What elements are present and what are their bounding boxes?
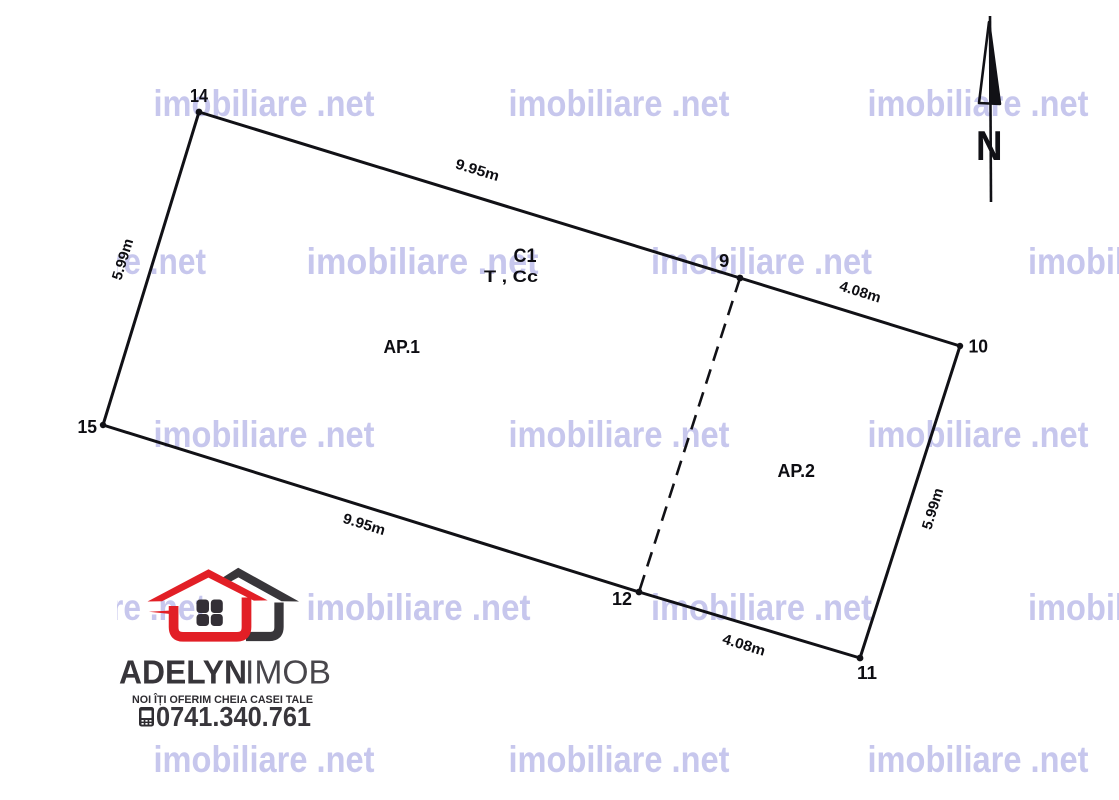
svg-text:imobiliare .net: imobiliare .net [154, 414, 375, 455]
svg-text:15: 15 [78, 416, 98, 437]
svg-text:imobiliare .net: imobiliare .net [307, 587, 531, 628]
svg-text:imobiliare .net: imobiliare .net [868, 414, 1089, 455]
svg-text:10: 10 [969, 336, 989, 357]
svg-text:9.95m: 9.95m [341, 511, 387, 539]
svg-text:9: 9 [719, 250, 729, 271]
svg-text:5.99m: 5.99m [920, 486, 948, 531]
svg-text:4.08m: 4.08m [837, 279, 882, 307]
svg-text:imobiliare .net: imobiliare .net [154, 739, 375, 780]
svg-text:0741.340.761: 0741.340.761 [156, 701, 311, 732]
svg-text:C1: C1 [514, 246, 537, 267]
svg-text:imobiliare .net: imobiliare .net [154, 83, 375, 124]
svg-text:4.08m: 4.08m [720, 632, 767, 660]
svg-text:imobiliare .net: imobiliare .net [868, 739, 1089, 780]
svg-text:imobiliare .net: imobiliare .net [509, 414, 730, 455]
svg-text:T , Cc: T , Cc [484, 267, 538, 286]
svg-text:AP.1: AP.1 [384, 336, 421, 357]
svg-text:ADELYN: ADELYN [119, 654, 247, 691]
svg-text:N: N [976, 122, 1003, 169]
svg-text:11: 11 [857, 662, 877, 683]
svg-text:IMOB: IMOB [245, 654, 331, 691]
svg-text:9.95m: 9.95m [453, 157, 501, 185]
svg-text:imobiliare .net: imobiliare .net [1028, 587, 1119, 628]
svg-text:imobiliare .net: imobiliare .net [509, 739, 730, 780]
svg-text:re .net: re .net [111, 587, 206, 628]
svg-text:AP.2: AP.2 [778, 460, 816, 481]
svg-text:imobiliare .net: imobiliare .net [651, 587, 872, 628]
svg-text:14: 14 [190, 85, 209, 106]
svg-text:imobiliare .net: imobiliare .net [1028, 241, 1119, 282]
svg-text:12: 12 [612, 588, 632, 609]
svg-text:imobiliare .net: imobiliare .net [509, 83, 730, 124]
